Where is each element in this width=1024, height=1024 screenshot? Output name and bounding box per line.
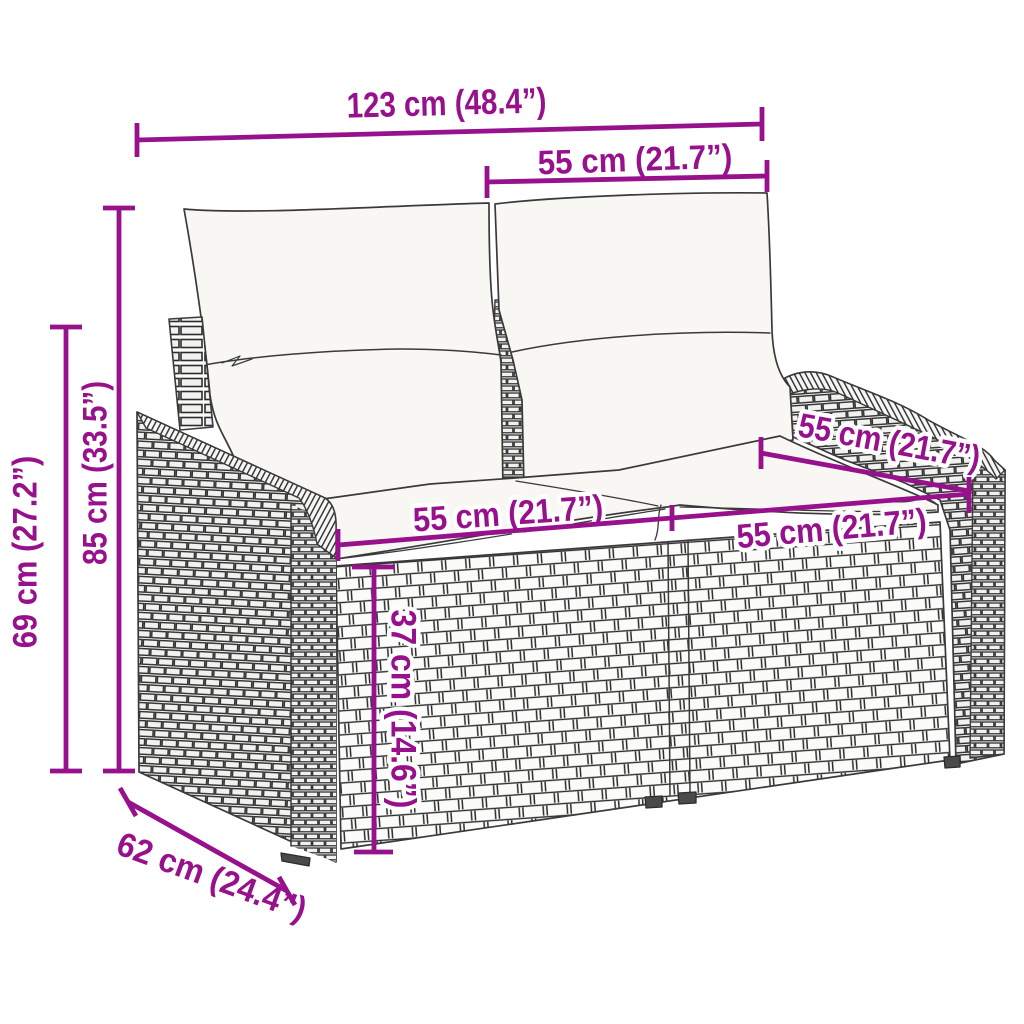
- svg-text:123 cm (48.4”): 123 cm (48.4”): [346, 80, 547, 125]
- svg-text:62 cm (24.4”): 62 cm (24.4”): [112, 824, 312, 928]
- svg-text:55 cm (21.7”): 55 cm (21.7”): [537, 136, 733, 181]
- svg-text:85 cm (33.5”): 85 cm (33.5”): [76, 381, 114, 565]
- svg-text:37 cm (14.6”): 37 cm (14.6”): [383, 610, 423, 809]
- svg-text:69 cm (27.2”): 69 cm (27.2”): [6, 456, 44, 649]
